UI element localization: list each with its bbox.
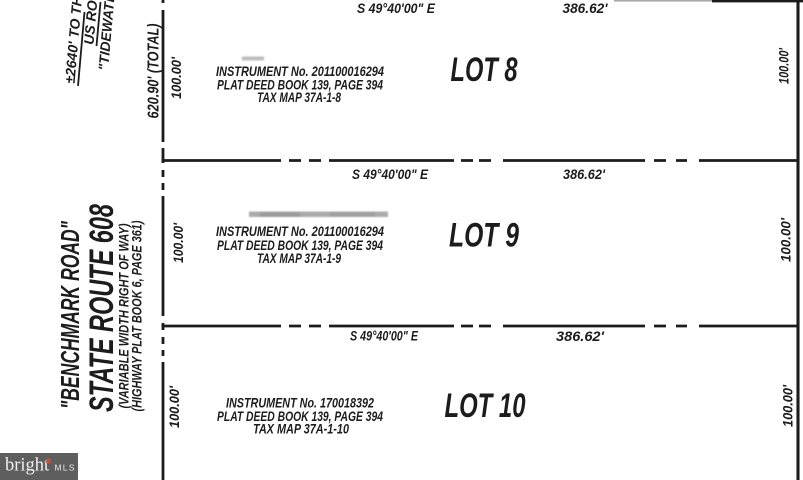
svg-text:100.00': 100.00' [166, 385, 182, 428]
svg-text:MLS: MLS [55, 463, 76, 473]
svg-text:100.00': 100.00' [168, 56, 184, 99]
svg-text:LOT 9: LOT 9 [449, 217, 519, 255]
svg-text:620.90' (TOTAL): 620.90' (TOTAL) [146, 24, 163, 119]
svg-text:100.00': 100.00' [776, 47, 792, 84]
svg-text:100.00': 100.00' [778, 217, 794, 262]
svg-text:S 49°40'00" E: S 49°40'00" E [350, 328, 418, 344]
svg-text:TAX MAP 37A-1-9: TAX MAP 37A-1-9 [257, 250, 341, 266]
svg-text:100.00': 100.00' [780, 384, 796, 427]
svg-text:100.00': 100.00' [170, 222, 186, 263]
svg-text:(HIGHWAY PLAT BOOK 6, PAGE 361: (HIGHWAY PLAT BOOK 6, PAGE 361) [130, 220, 145, 411]
svg-text:LOT 10: LOT 10 [445, 387, 526, 425]
svg-text:LOT 8: LOT 8 [451, 51, 518, 89]
svg-text:STATE ROUTE 608: STATE ROUTE 608 [83, 204, 121, 412]
svg-text:TAX MAP 37A-1-10: TAX MAP 37A-1-10 [253, 421, 349, 437]
svg-text:S 49°40'00" E: S 49°40'00" E [357, 0, 436, 16]
svg-text:"BENCHMARK ROAD": "BENCHMARK ROAD" [55, 221, 85, 409]
svg-text:386.62': 386.62' [556, 328, 605, 344]
svg-text:✱: ✱ [45, 456, 53, 466]
svg-text:TAX MAP 37A-1-8: TAX MAP 37A-1-8 [257, 89, 341, 105]
svg-text:386.62': 386.62' [563, 166, 606, 182]
svg-text:bright: bright [5, 456, 50, 476]
svg-text:386.62': 386.62' [563, 0, 609, 16]
svg-text:S 49°40'00" E: S 49°40'00" E [352, 166, 429, 182]
